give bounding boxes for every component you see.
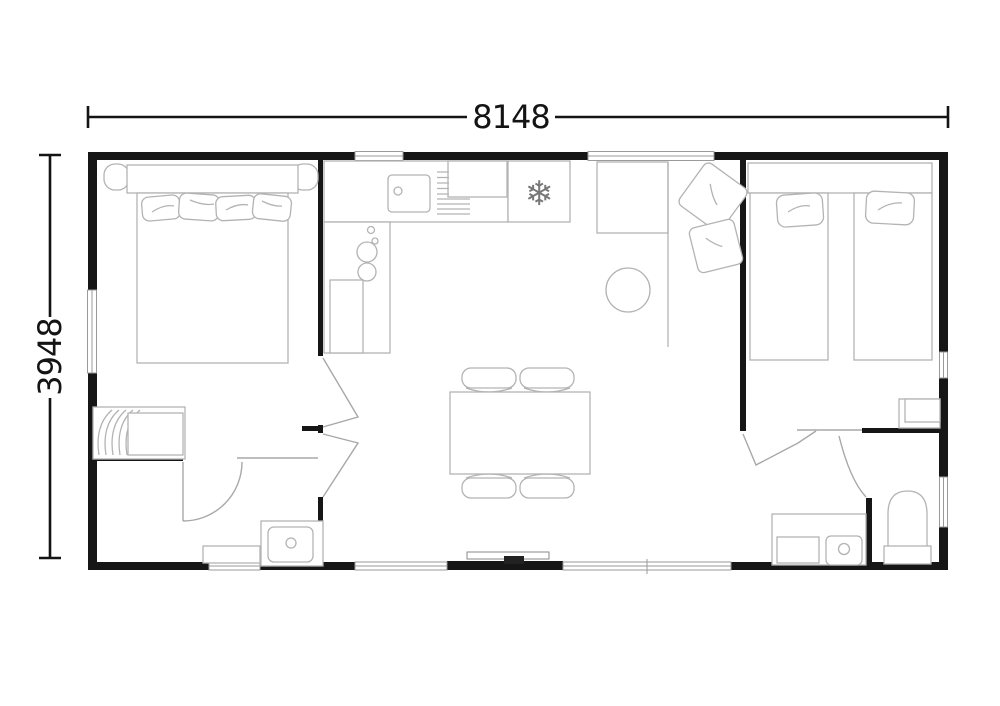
dining-chair-1 xyxy=(462,368,516,392)
bedroom1-bifold-door xyxy=(323,358,358,427)
nightstand-left xyxy=(104,164,129,190)
bathroom1-swing-door xyxy=(183,462,242,521)
bathroom2 xyxy=(772,491,931,565)
bathroom2-door xyxy=(839,436,866,497)
corner-cabinet xyxy=(899,399,940,428)
window-bedroom2-right xyxy=(940,352,948,378)
round-table xyxy=(606,268,650,312)
window-living-bottom-left xyxy=(355,562,447,570)
window-wc-right xyxy=(940,477,948,527)
bathroom1 xyxy=(203,521,323,566)
dimension-width-label: 8148 xyxy=(472,98,549,136)
kitchen-sink xyxy=(388,175,430,212)
headboard xyxy=(127,165,298,193)
dining-chair-2 xyxy=(520,368,574,392)
kitchen-lower-cabinet xyxy=(330,280,363,353)
washbasin2 xyxy=(826,536,862,565)
bedroom1 xyxy=(93,164,318,459)
lounge xyxy=(597,161,749,347)
bedroom2-folding-door xyxy=(743,431,816,465)
freezer-snowflake-icon: ❄ xyxy=(525,174,554,214)
washbasin1 xyxy=(261,521,323,566)
floor-plan-page: 8148 3948 xyxy=(0,0,1000,706)
dimension-height-label: 3948 xyxy=(31,318,69,395)
window-lounge-top xyxy=(588,152,714,161)
step xyxy=(203,546,260,563)
dining-chair-4 xyxy=(520,474,574,498)
bathroom1-bifold-door xyxy=(323,434,358,497)
floor-plan: 8148 3948 xyxy=(0,0,1000,706)
twin-pillows xyxy=(776,191,915,228)
dining-table xyxy=(450,392,590,474)
headboard-shelf xyxy=(748,163,932,193)
toilet xyxy=(884,491,931,564)
bedroom2 xyxy=(748,163,940,428)
window-living-bottom-right xyxy=(563,559,731,574)
dining-chair-3 xyxy=(462,474,516,498)
window-bedroom1-left xyxy=(88,290,97,373)
kitchen-cabinet xyxy=(448,161,507,197)
dining-area xyxy=(450,368,590,498)
sliding-door-handle xyxy=(504,556,524,564)
fridge-freezer: ❄ xyxy=(508,161,570,222)
vanity-cabinet xyxy=(777,537,819,563)
dimension-width: 8148 xyxy=(88,98,948,136)
bench-sofa xyxy=(597,162,668,233)
dimension-height: 3948 xyxy=(31,155,69,558)
wardrobe xyxy=(93,407,185,459)
kitchen: ❄ xyxy=(324,161,570,353)
bed-pillows xyxy=(141,193,292,222)
sofa-cushions xyxy=(677,161,750,274)
window-kitchen-top xyxy=(355,152,403,161)
